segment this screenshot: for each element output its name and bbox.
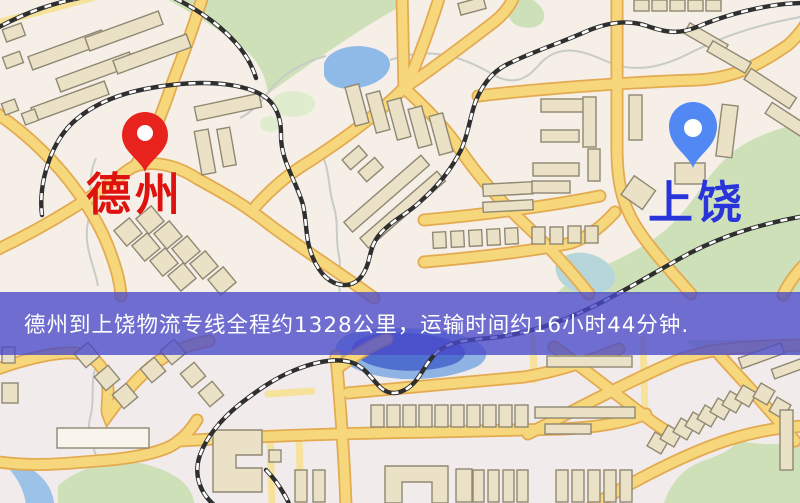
- map-canvas[interactable]: [0, 0, 800, 503]
- destination-pin-dot: [684, 119, 702, 137]
- route-info-text: 德州到上饶物流专线全程约1328公里，运输时间约16小时44分钟.: [24, 308, 689, 339]
- route-info-banner: 德州到上饶物流专线全程约1328公里，运输时间约16小时44分钟.: [0, 292, 800, 355]
- destination-label: 上饶: [648, 180, 746, 225]
- map-screenshot: 德州 上饶 德州到上饶物流专线全程约1328公里，运输时间约16小时44分钟.: [0, 0, 800, 503]
- origin-label: 德州: [86, 172, 184, 217]
- origin-pin-dot: [137, 125, 153, 141]
